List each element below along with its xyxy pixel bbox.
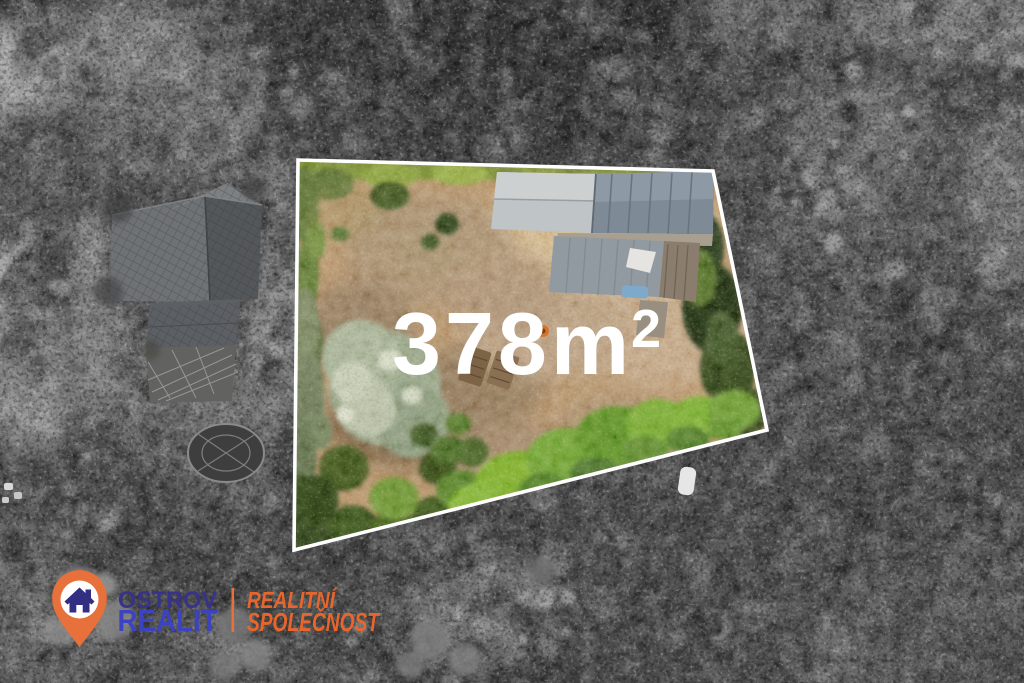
svg-text:SPOLEČNOST: SPOLEČNOST xyxy=(247,607,381,637)
svg-text:378m: 378m xyxy=(392,294,633,393)
svg-text:2: 2 xyxy=(631,299,661,359)
svg-text:REALIT: REALIT xyxy=(118,603,218,638)
